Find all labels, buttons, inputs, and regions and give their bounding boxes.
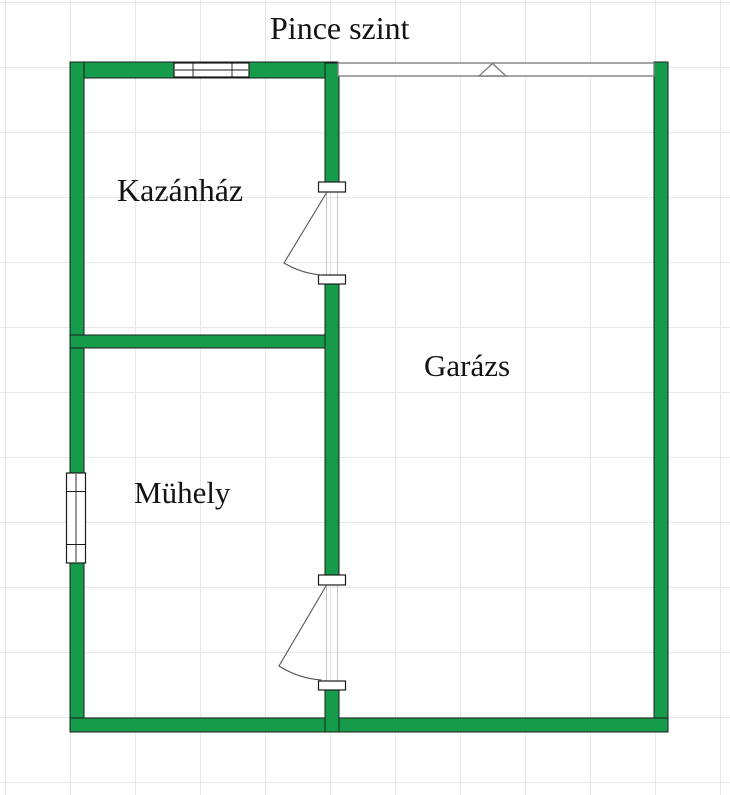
- walls: [70, 62, 668, 732]
- window-left: [67, 473, 86, 563]
- floor-plan-canvas: Pince szint Kazánház Garázs Mühely: [0, 0, 730, 795]
- room-label-muhely: Mühely: [134, 475, 230, 511]
- door-kazanhaz-leaf: [284, 192, 327, 275]
- wall-middle-horizontal: [70, 335, 339, 348]
- floor-plan-drawing: [0, 0, 730, 795]
- window-top: [174, 63, 249, 77]
- wall-bottom: [70, 718, 668, 732]
- door-muhely-jamb-bottom: [319, 681, 346, 690]
- wall-left: [70, 62, 84, 732]
- door-muhely: [279, 575, 346, 690]
- door-kazanhaz: [284, 182, 346, 284]
- door-muhely-jamb-top: [319, 575, 346, 585]
- garage-door: [338, 63, 654, 76]
- room-label-kazanhaz: Kazánház: [117, 172, 243, 209]
- room-label-garazs: Garázs: [424, 348, 510, 384]
- wall-middle-vertical-upper: [325, 63, 339, 182]
- door-kazanhaz-jamb-bottom: [319, 275, 346, 284]
- wall-right: [654, 62, 668, 732]
- wall-middle-vertical-lower: [325, 690, 339, 732]
- door-kazanhaz-jamb-top: [319, 182, 346, 192]
- door-muhely-leaf: [279, 586, 326, 680]
- wall-middle-vertical-center: [325, 284, 339, 575]
- floor-title: Pince szint: [270, 10, 410, 47]
